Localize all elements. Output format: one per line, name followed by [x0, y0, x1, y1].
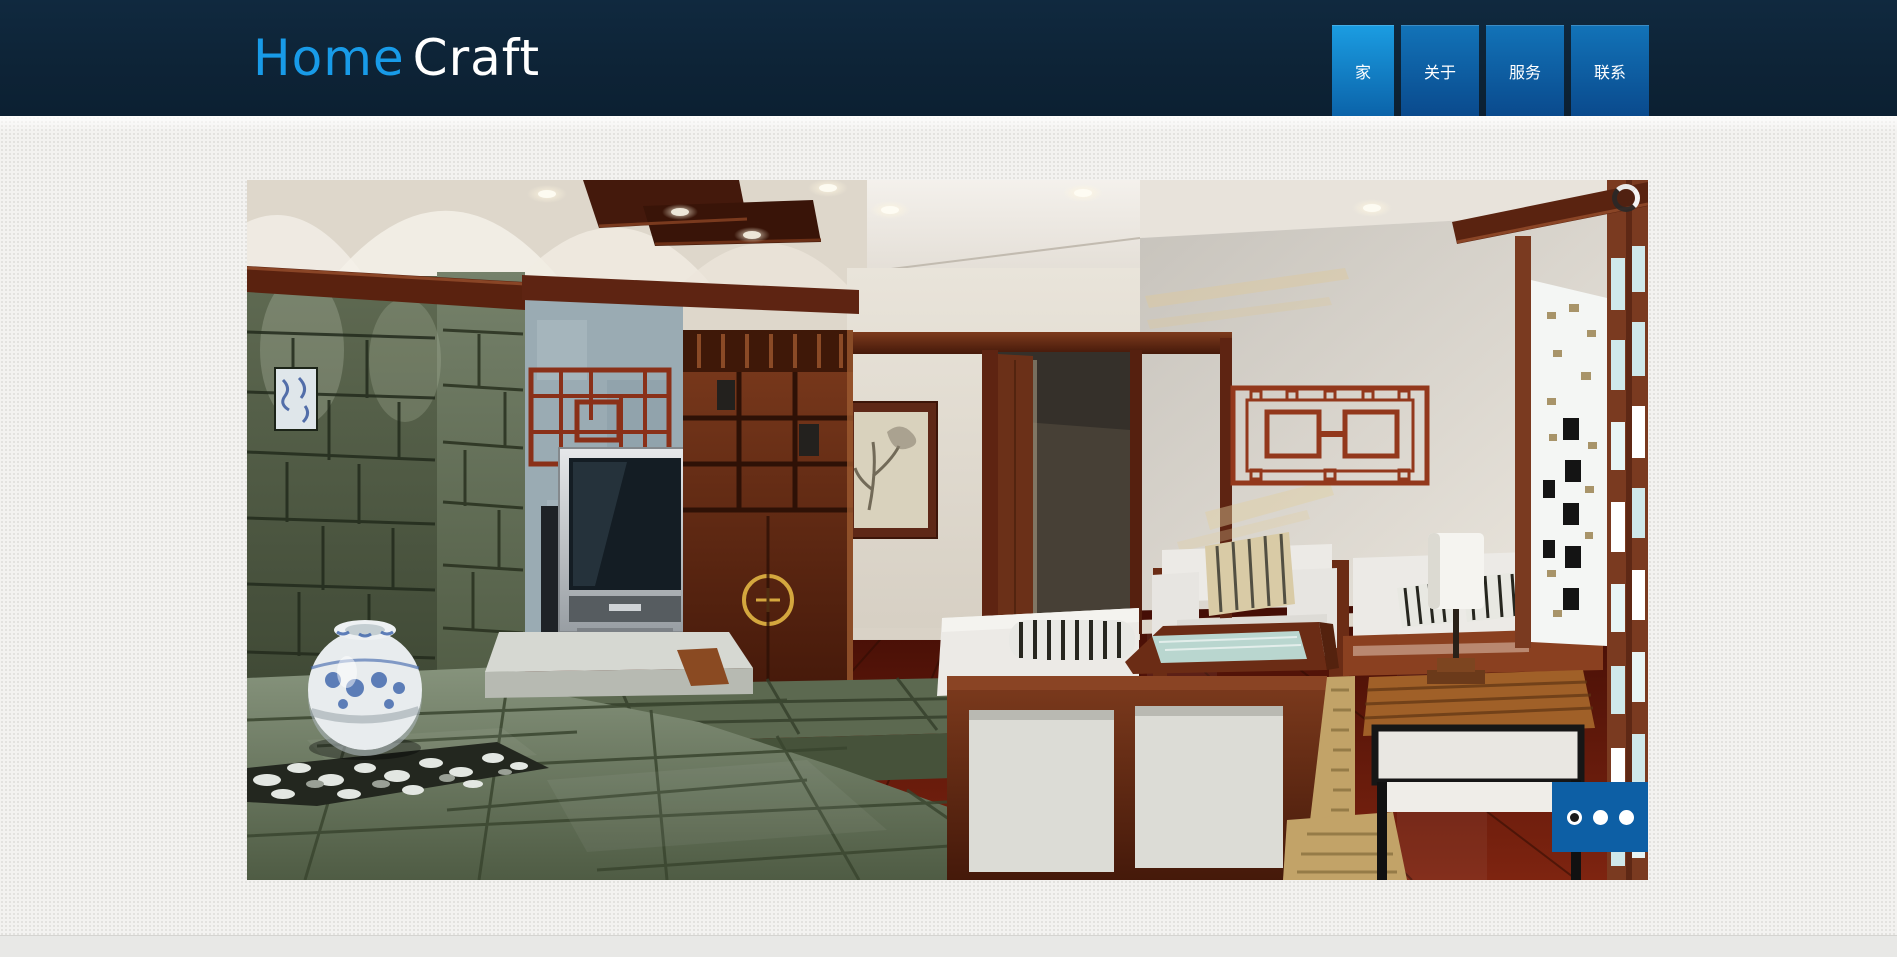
nav-item-about[interactable]: 关于 — [1401, 25, 1479, 116]
page: HomeCraft 家 关于 服务 联系 — [0, 0, 1897, 957]
header: HomeCraft 家 关于 服务 联系 — [0, 0, 1897, 116]
hero-slideshow — [247, 180, 1648, 880]
brand-name-secondary: Craft — [413, 29, 540, 87]
header-glow — [0, 116, 1897, 132]
carousel-dot-2[interactable] — [1593, 810, 1608, 825]
hero-slide-interior-scene — [247, 180, 1648, 880]
framed-painting — [845, 402, 937, 538]
nav-item-home[interactable]: 家 — [1332, 25, 1394, 116]
patterned-cushion — [1205, 532, 1295, 616]
striped-bolster — [1009, 620, 1135, 660]
brand-logo[interactable]: HomeCraft — [253, 29, 540, 87]
carousel-dot-3[interactable] — [1619, 810, 1634, 825]
brand-name-primary: Home — [253, 29, 405, 87]
main-nav: 家 关于 服务 联系 — [1332, 25, 1649, 116]
sofa-wood-base — [947, 676, 1327, 880]
nav-item-services[interactable]: 服务 — [1486, 25, 1564, 116]
nav-item-contact[interactable]: 联系 — [1571, 25, 1649, 116]
footer-bar — [0, 935, 1897, 957]
carousel-pager — [1552, 782, 1648, 852]
loading-spinner-icon — [1612, 184, 1640, 212]
tv-bench — [485, 632, 753, 698]
carousel-dot-1[interactable] — [1567, 810, 1582, 825]
